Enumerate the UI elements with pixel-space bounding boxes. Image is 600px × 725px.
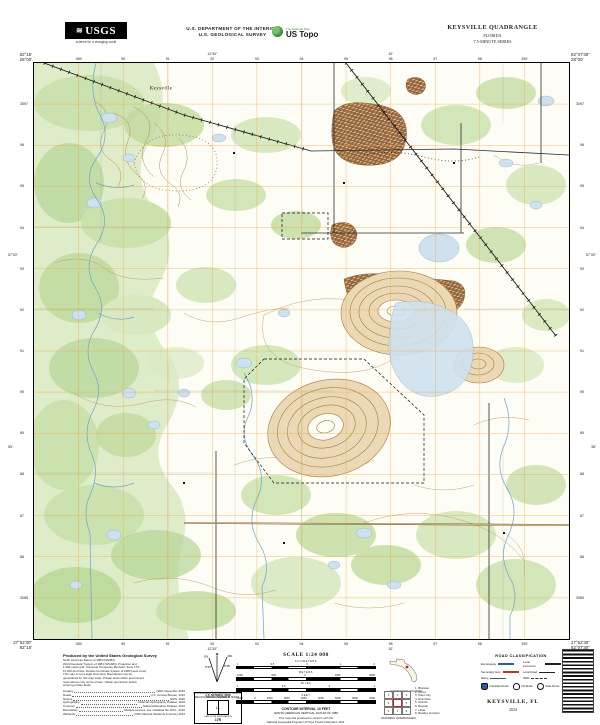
road-class-row: Local Connector (523, 660, 561, 668)
road-class-line-sample (545, 663, 561, 664)
route-shield-label: State Route (545, 685, 559, 688)
usng-square-id: LL (207, 700, 229, 715)
grid-tick-label: 97 (433, 642, 437, 646)
svg-text:MN: MN (228, 654, 233, 658)
scale-tick-label: 0.5 (271, 663, 275, 666)
scale-tick-label: 1 (237, 663, 238, 666)
scale-bar (236, 666, 376, 670)
metadata-barcode-block (563, 650, 593, 712)
topographic-map-image (34, 63, 569, 639)
grid-tick-label: 90 (20, 390, 24, 394)
scale-tick-label: 1 (237, 685, 238, 688)
florida-outline-icon (385, 654, 427, 684)
grid-tick-label: 87 (580, 514, 584, 518)
road-class-line-sample (539, 672, 555, 673)
grid-tick-label: 57'30" (586, 253, 596, 257)
dotted-leader (79, 711, 124, 712)
grid-tick-label: 95 (580, 184, 584, 188)
scale-tick-label: 4000 (318, 697, 324, 700)
grid-tick-label: 92 (210, 642, 214, 646)
scale-tick-label: 1000 (237, 697, 243, 700)
grid-tick-label: 89 (580, 431, 584, 435)
grid-tick-label: 55' (591, 445, 596, 449)
usgs-logo-text: USGS (85, 25, 116, 37)
road-classification-title: ROAD CLASSIFICATION (481, 654, 561, 658)
quad-title: KEYSVILLE QUADRANGLE (400, 24, 585, 31)
corner-coordinates-top-left: 82°15'28°00' (4, 52, 32, 62)
scale-bar (236, 700, 376, 704)
usng-gzd-value: 17R (196, 718, 240, 722)
adjoining-quadrangle-grid: 12345678 (384, 691, 411, 715)
grid-tick-label: 88 (20, 472, 24, 476)
production-credits-block: Produced by the United States Geological… (63, 653, 185, 717)
adjoining-grid-cell: 6 (384, 707, 393, 715)
quad-series: 7.5-MINUTE SERIES (400, 39, 585, 44)
grid-tick-label: 87 (20, 514, 24, 518)
road-class-line-sample (503, 671, 519, 673)
route-shield-label: US Route (521, 685, 533, 688)
route-shield-item: Interstate Route (481, 683, 509, 690)
dotted-leader (74, 692, 155, 693)
grid-tick-label: 389 (76, 642, 82, 646)
adjoining-grid-cell: 8 (402, 707, 411, 715)
grid-tick-label: 98 (478, 642, 482, 646)
grid-tick-label: 88 (580, 472, 584, 476)
scale-block: SCALE 1:24 000 KILOMETERS10.5012METERS10… (236, 652, 376, 724)
scale-tick-label: 2000 (369, 674, 375, 677)
grid-tick-label: 94 (580, 226, 584, 230)
us-national-grid-box: U.S. NATIONAL GRID 100,000-m SQUARE ID L… (194, 692, 242, 724)
grid-tick-label: 3085 (20, 596, 28, 600)
road-class-row: Ramp (481, 676, 519, 680)
grid-tick-label: 399 (521, 642, 527, 646)
road-class-label: Ramp (481, 676, 488, 680)
scale-bar-row: METERS1000500010002000 (236, 671, 376, 681)
road-class-label: Local Connector (523, 660, 543, 668)
scale-tick-label: 1000 (335, 674, 341, 677)
grid-tick-label: 94 (299, 57, 303, 61)
ustopo-globe-icon (272, 26, 283, 37)
road-class-row: 4WD (523, 676, 561, 680)
adjoining-grid-cell (393, 699, 402, 707)
road-class-label: Secondary Hwy (481, 670, 501, 674)
grid-tick-label: 96 (389, 57, 393, 61)
data-source-credits: ImageryNAIP, December 2019RoadsU.S. Cens… (63, 690, 185, 717)
usgs-wave-icon: ≋ (76, 26, 83, 35)
usng-subtitle: 100,000-m SQUARE ID (196, 697, 240, 699)
grid-tick-label: 91 (166, 642, 170, 646)
scale-tick-label: 0.5 (282, 685, 286, 688)
corner-coordinates-bottom-right: 27°52'30"82°07'30" (571, 640, 599, 650)
grid-tick-label: 96 (580, 143, 584, 147)
scale-tick-label: 2000 (284, 697, 290, 700)
fineprint-line: entering private lands. (63, 684, 185, 688)
us-topo-map-sheet: ≋ USGS science for a changing world U.S.… (0, 0, 600, 725)
grid-tick-label: 97 (433, 57, 437, 61)
ustopo-logo: The National Map US Topo (272, 26, 318, 37)
grid-tick-label: 10' (388, 647, 393, 651)
state-shield-icon (537, 683, 544, 690)
adjoining-grid-cell: 1 (384, 691, 393, 699)
scale-tick-label: 3000 (301, 697, 307, 700)
grid-tick-label: 399 (521, 57, 527, 61)
map-edition-year: 2024 (468, 707, 558, 712)
road-class-row: Secondary Hwy (481, 670, 519, 674)
interstate-shield-icon (481, 683, 488, 690)
scale-tick-label: 5000 (335, 697, 341, 700)
road-class-line-sample (531, 678, 547, 679)
map-title-block: KEYSVILLE, FL 2024 (468, 699, 558, 712)
road-class-label: Local Road (523, 670, 537, 674)
credit-label: Wetlands (63, 713, 75, 717)
grid-tick-label: 89 (20, 431, 24, 435)
grid-tick-label: 94 (20, 226, 24, 230)
grid-tick-label: 3097 (20, 102, 28, 106)
usgs-logo: ≋ USGS (65, 22, 127, 39)
adjoining-caption: ADJOINING QUADRANGLES (381, 717, 467, 720)
grid-tick-label: 91 (580, 349, 584, 353)
grid-tick-label: 90 (121, 57, 125, 61)
adjoining-grid-cell: 3 (402, 691, 411, 699)
dotted-leader (76, 715, 133, 716)
grid-tick-label: 86 (580, 555, 584, 559)
scale-tick-label: 1 (340, 663, 341, 666)
scale-bar-row: MILES10.501 (236, 682, 376, 692)
credit-row: WetlandsFWS National Wetlands Inventory … (63, 713, 185, 717)
grid-tick-label: 57'30" (8, 253, 18, 257)
scale-bar (236, 688, 376, 692)
quad-state: FLORIDA (400, 33, 585, 38)
ustopo-title: US Topo (286, 32, 318, 37)
contour-interval-note: CONTOUR INTERVAL 10 FEET NORTH AMERICAN … (236, 707, 376, 716)
corner-coordinates-top-right: 82°07'30"28°00' (571, 52, 599, 62)
scale-tick-label: 6000 (352, 697, 358, 700)
adjoining-grid-cell: 4 (384, 699, 393, 707)
scale-tick-label: 1000 (237, 674, 243, 677)
usgs-tagline: science for a changing world (65, 40, 127, 44)
grid-tick-label: 98 (478, 57, 482, 61)
scale-tick-label: 500 (272, 674, 276, 677)
grid-tick-label: 90 (121, 642, 125, 646)
grid-tick-label: 96 (389, 642, 393, 646)
grid-tick-label: 95 (344, 642, 348, 646)
road-class-label: Expressway (481, 662, 496, 666)
grid-tick-label: 94 (299, 642, 303, 646)
route-shield-item: US Route (513, 683, 533, 690)
grid-tick-label: 3097 (576, 102, 584, 106)
grid-tick-label: 91 (166, 57, 170, 61)
dotted-leader (81, 704, 138, 705)
grid-tick-label: 93 (255, 57, 259, 61)
scale-tick-label: 1 (374, 685, 375, 688)
corner-coordinates-bottom-left: 27°52'30"82°15' (4, 640, 32, 650)
product-standard-note: This map was produced to conform with th… (236, 717, 376, 724)
grid-tick-label: 86 (20, 555, 24, 559)
scale-tick-label: 0 (305, 674, 306, 677)
grid-tick-label: 12'30" (207, 647, 217, 651)
scale-bar-row: FEET100001000200030004000500060007000 (236, 694, 376, 704)
scale-tick-label: 1000 (267, 697, 273, 700)
grid-tick-label: 93 (580, 267, 584, 271)
scale-tick-label: 2 (374, 663, 375, 666)
map-sheet-name: KEYSVILLE, FL (468, 699, 558, 705)
grid-tick-label: 92 (210, 57, 214, 61)
route-shield-item: State Route (537, 683, 560, 690)
adjoining-quad-name: 8. Bradley Junction (415, 712, 440, 716)
quadrangle-location-dot (406, 666, 409, 669)
grid-tick-label: 93 (255, 642, 259, 646)
adjoining-grid-cell: 5 (402, 699, 411, 707)
adjoining-grid-cell: 2 (393, 691, 402, 699)
svg-text:0°33': 0°33' (205, 665, 212, 669)
scale-bar (236, 677, 376, 681)
quadrangle-title-block: KEYSVILLE QUADRANGLE FLORIDA 7.5-MINUTE … (400, 24, 585, 44)
adjoining-grid-cell: 7 (393, 707, 402, 715)
route-shield-label: Interstate Route (490, 685, 509, 688)
road-class-label: 4WD (523, 676, 529, 680)
grid-tick-label: 96 (20, 143, 24, 147)
road-class-row: Expressway (481, 660, 519, 668)
grid-tick-label: 92 (580, 308, 584, 312)
scale-tick-label: 0 (329, 685, 330, 688)
grid-tick-label: 93 (20, 267, 24, 271)
grid-tick-label: 10' (388, 52, 393, 56)
grid-tick-label: 55' (8, 445, 13, 449)
road-class-row: Local Road (523, 670, 561, 674)
road-classification-legend: ROAD CLASSIFICATION ExpresswayLocal Conn… (481, 654, 561, 690)
dotted-leader (72, 696, 149, 697)
grid-tick-label: 92 (20, 308, 24, 312)
scale-tick-label: 0 (306, 663, 307, 666)
road-class-line-sample (490, 678, 506, 679)
scale-bar-row: KILOMETERS10.5012 (236, 660, 376, 670)
grid-tick-label: 3085 (576, 596, 584, 600)
scale-tick-label: 0 (254, 697, 255, 700)
road-class-line-sample (498, 663, 514, 665)
grid-tick-label: 389 (76, 57, 82, 61)
svg-text:6°45': 6°45' (224, 664, 231, 668)
adjoining-quadrangle-list: 1. Brandon2. Dover3. Plant City4. Riverv… (415, 687, 440, 716)
us-shield-icon (513, 683, 520, 690)
grid-tick-label: 95 (20, 184, 24, 188)
svg-text:★: ★ (215, 652, 219, 656)
grid-tick-label: 12'30" (207, 52, 217, 56)
scale-tick-label: 7000 (369, 697, 375, 700)
grid-tick-label: 90 (580, 390, 584, 394)
credit-value: FWS National Wetlands Inventory 2014 (134, 713, 185, 717)
grid-tick-label: 91 (20, 349, 24, 353)
map-frame: 82°15'28°00' 82°07'30"28°00' 27°52'30"82… (33, 62, 570, 640)
scale-title: SCALE 1:24 000 (236, 652, 376, 658)
grid-tick-label: 95 (344, 57, 348, 61)
svg-text:GN: GN (204, 655, 209, 659)
